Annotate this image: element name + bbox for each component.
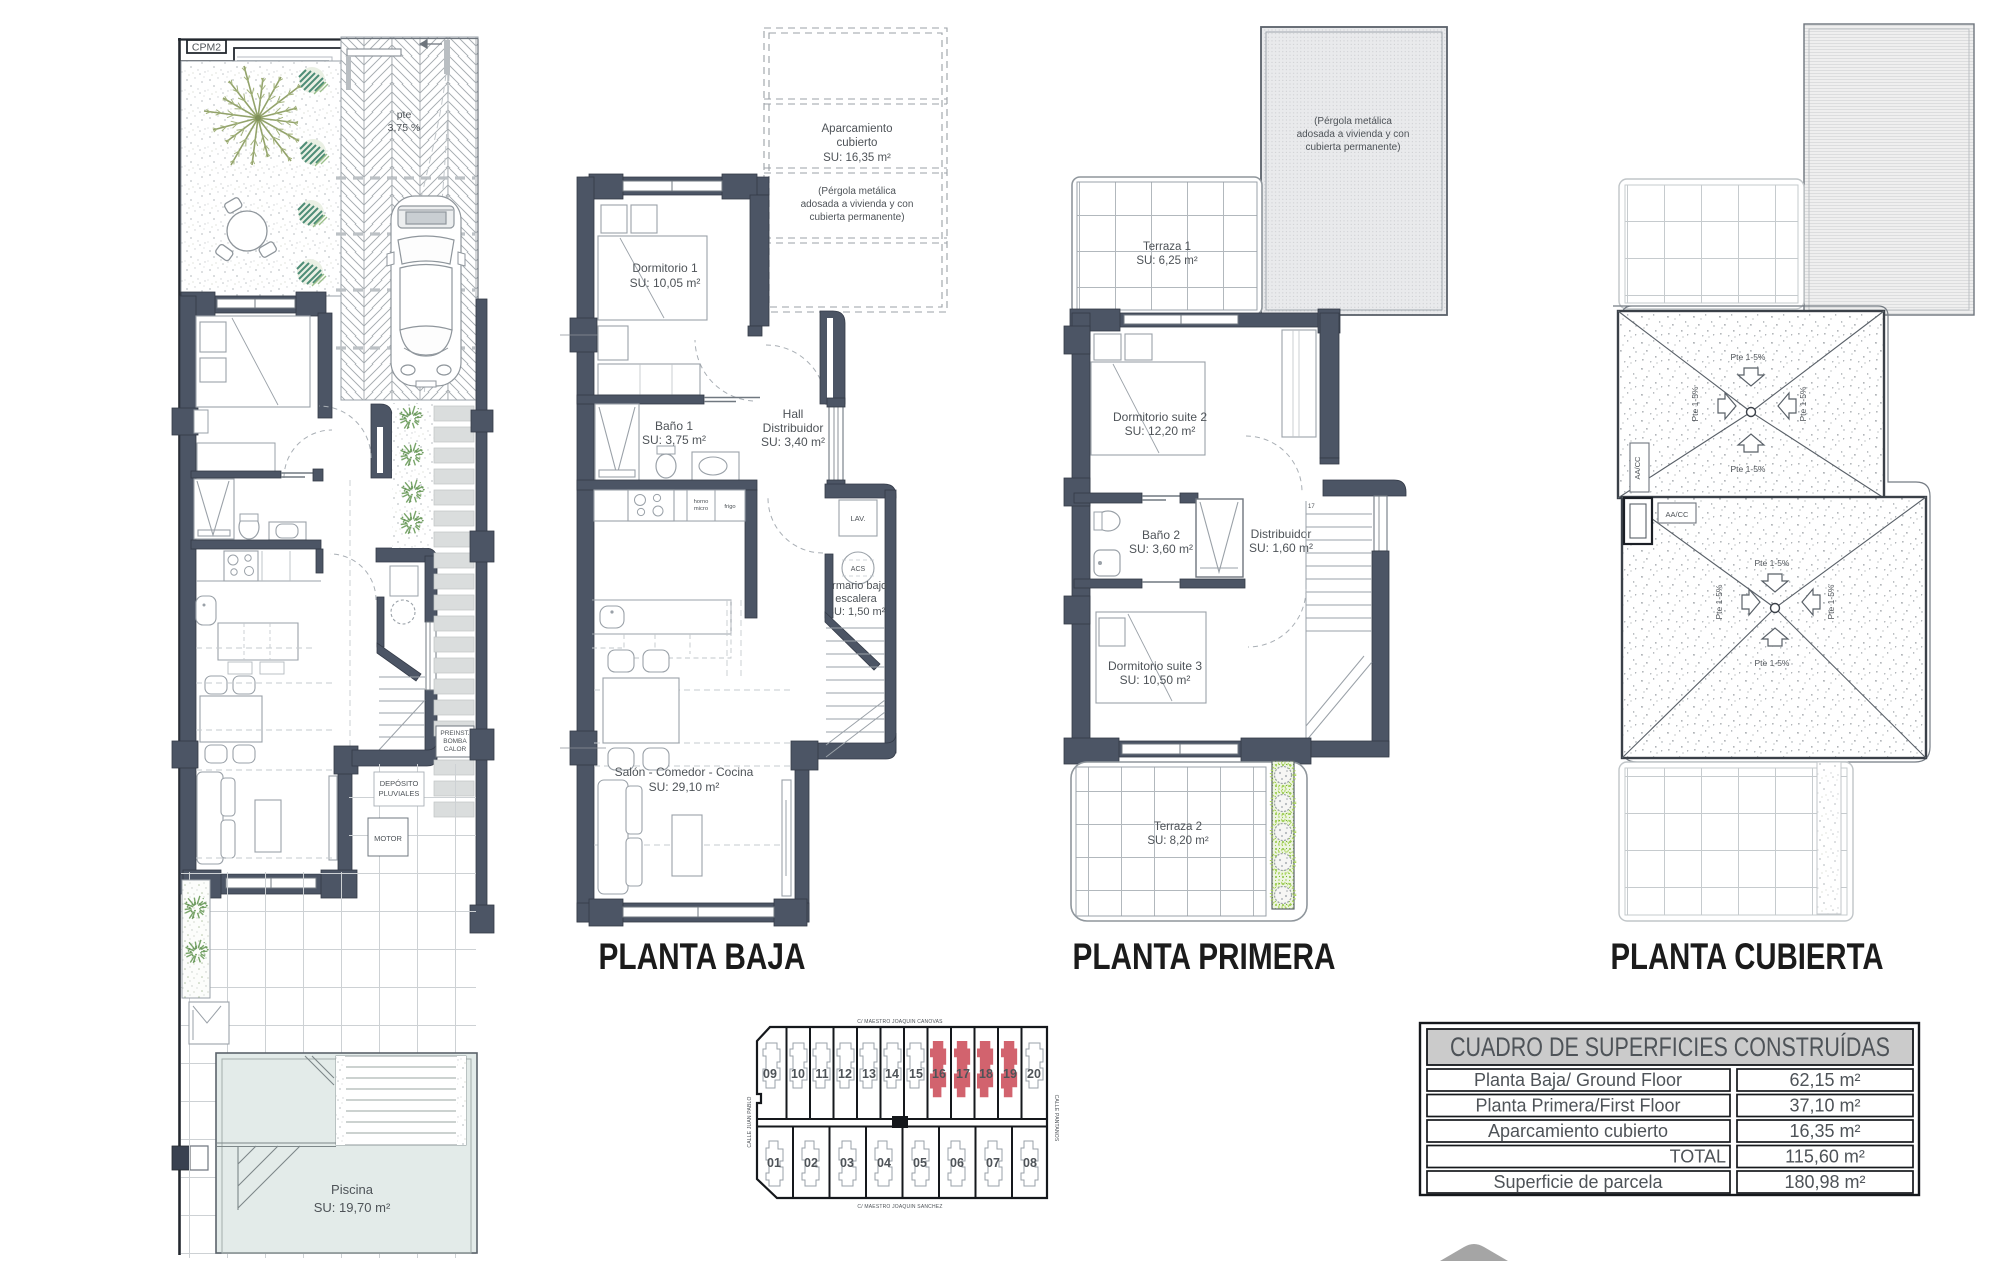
svg-text:19: 19 [1003,1067,1017,1081]
svg-text:PREINST.: PREINST. [440,730,469,737]
svg-text:(Pérgola metálica: (Pérgola metálica [818,186,896,197]
svg-text:Baño 1: Baño 1 [655,419,693,433]
svg-text:PLUVIALES: PLUVIALES [379,789,420,798]
svg-text:adosada a vivienda y con: adosada a vivienda y con [801,199,914,210]
svg-text:Pte 1-5%: Pte 1-5% [1755,558,1790,568]
svg-text:Terraza 1: Terraza 1 [1143,241,1191,253]
svg-text:cubierto: cubierto [837,137,878,149]
svg-text:SU: 29,10 m²: SU: 29,10 m² [649,780,720,794]
svg-text:horno: horno [694,499,709,505]
svg-text:Piscina: Piscina [331,1182,374,1197]
svg-text:Dormitorio suite 3: Dormitorio suite 3 [1108,659,1202,673]
svg-text:13: 13 [862,1067,876,1081]
svg-text:04: 04 [877,1156,891,1170]
svg-text:16: 16 [932,1067,946,1081]
svg-text:SU: 3,40 m²: SU: 3,40 m² [761,435,825,449]
svg-text:PLANTA BAJA: PLANTA BAJA [599,936,806,977]
svg-text:SU: 6,25 m²: SU: 6,25 m² [1136,255,1198,267]
svg-text:DEPÓSITO: DEPÓSITO [380,779,419,788]
svg-text:3,75 %: 3,75 % [388,122,421,134]
svg-text:115,60 m²: 115,60 m² [1785,1147,1865,1167]
svg-text:CPM2: CPM2 [192,42,221,54]
svg-text:Pte 1-5%: Pte 1-5% [1690,386,1700,421]
svg-text:(Pérgola metálica: (Pérgola metálica [1314,116,1392,127]
svg-text:SU: 19,70 m²: SU: 19,70 m² [314,1200,391,1215]
svg-text:Planta Primera/First Floor: Planta Primera/First Floor [1475,1096,1680,1116]
svg-text:Aparcamiento: Aparcamiento [822,123,893,135]
svg-text:Pte 1-5%: Pte 1-5% [1731,464,1766,474]
svg-text:01: 01 [767,1156,781,1170]
svg-text:07: 07 [986,1156,1000,1170]
svg-text:08: 08 [1023,1156,1037,1170]
svg-text:LAV.: LAV. [850,514,865,523]
svg-text:20: 20 [1027,1067,1041,1081]
svg-text:AA/CC: AA/CC [1633,456,1642,480]
svg-text:SU: 3,75 m²: SU: 3,75 m² [642,433,706,447]
svg-text:Superficie de parcela: Superficie de parcela [1493,1172,1663,1192]
svg-text:12: 12 [838,1067,852,1081]
svg-text:SU: 12,20 m²: SU: 12,20 m² [1125,424,1196,438]
svg-text:PLANTA PRIMERA: PLANTA PRIMERA [1073,936,1336,977]
svg-text:SU: 10,05 m²: SU: 10,05 m² [630,276,701,290]
svg-text:16,35 m²: 16,35 m² [1789,1121,1860,1141]
svg-text:cubierta permanente): cubierta permanente) [1305,142,1400,153]
svg-text:15: 15 [909,1067,923,1081]
svg-text:SU: 16,35 m²: SU: 16,35 m² [823,152,891,164]
svg-text:C/ MAESTRO JOAQUIN SANCHEZ: C/ MAESTRO JOAQUIN SANCHEZ [857,1204,942,1210]
svg-text:SU: 10,50 m²: SU: 10,50 m² [1120,673,1191,687]
svg-text:Pte 1-5%: Pte 1-5% [1826,584,1836,619]
svg-text:CALLE JUAN PABLO: CALLE JUAN PABLO [747,1096,753,1147]
svg-text:PLANTA CUBIERTA: PLANTA CUBIERTA [1611,936,1884,977]
svg-text:18: 18 [979,1067,993,1081]
svg-text:Dormitorio 1: Dormitorio 1 [632,261,698,275]
svg-text:AA/CC: AA/CC [1666,510,1690,519]
svg-text:Baño 2: Baño 2 [1142,528,1180,542]
svg-text:05: 05 [913,1156,927,1170]
svg-text:micro: micro [694,506,708,512]
svg-text:17: 17 [956,1067,970,1081]
svg-text:Pte 1-5%: Pte 1-5% [1798,386,1808,421]
svg-text:37,10 m²: 37,10 m² [1789,1096,1860,1116]
svg-text:Distribuidor: Distribuidor [763,421,824,435]
svg-text:MOTOR: MOTOR [374,834,402,843]
svg-text:180,98 m²: 180,98 m² [1784,1172,1865,1192]
svg-text:CALLE PANTANOS: CALLE PANTANOS [1053,1095,1059,1142]
svg-text:09: 09 [763,1067,777,1081]
svg-text:BOMBA: BOMBA [443,738,467,745]
svg-text:Planta Baja/ Ground Floor: Planta Baja/ Ground Floor [1474,1070,1682,1090]
svg-text:ACS: ACS [851,566,866,573]
svg-text:06: 06 [950,1156,964,1170]
svg-text:03: 03 [840,1156,854,1170]
svg-text:Salón - Comedor - Cocina: Salón - Comedor - Cocina [615,765,754,779]
svg-text:14: 14 [885,1067,899,1081]
svg-text:02: 02 [804,1156,818,1170]
svg-text:SU: 3,60 m²: SU: 3,60 m² [1129,542,1193,556]
svg-text:SU: 1,50 m²: SU: 1,50 m² [827,606,886,618]
svg-text:Armario bajo: Armario bajo [825,580,887,592]
svg-text:Hall: Hall [783,407,804,421]
svg-text:11: 11 [815,1067,828,1081]
svg-text:SU: 8,20 m²: SU: 8,20 m² [1147,835,1209,847]
svg-text:pte: pte [397,109,412,121]
svg-text:Terraza 2: Terraza 2 [1154,821,1202,833]
svg-text:Distribuidor: Distribuidor [1251,527,1312,541]
svg-text:escalera: escalera [835,593,877,605]
svg-text:Dormitorio suite 2: Dormitorio suite 2 [1113,410,1207,424]
svg-text:Aparcamiento cubierto: Aparcamiento cubierto [1488,1121,1668,1141]
svg-text:Pte 1-5%: Pte 1-5% [1731,352,1766,362]
svg-text:SU: 1,60 m²: SU: 1,60 m² [1249,541,1313,555]
svg-text:17: 17 [1308,504,1315,510]
svg-text:C/ MAESTRO JOAQUIN CANOVAS: C/ MAESTRO JOAQUIN CANOVAS [857,1019,943,1025]
svg-text:CUADRO DE SUPERFICIES CONSTRUÍ: CUADRO DE SUPERFICIES CONSTRUÍDAS [1450,1032,1890,1062]
svg-text:CALOR: CALOR [444,746,467,753]
svg-text:adosada a vivienda y con: adosada a vivienda y con [1297,129,1410,140]
svg-text:Pte 1-5%: Pte 1-5% [1755,658,1790,668]
svg-text:Pte 1-5%: Pte 1-5% [1714,584,1724,619]
svg-text:62,15 m²: 62,15 m² [1789,1070,1860,1090]
svg-text:10: 10 [791,1067,805,1081]
svg-text:cubierta permanente): cubierta permanente) [809,212,904,223]
svg-text:frigo: frigo [724,504,735,510]
svg-text:TOTAL: TOTAL [1670,1147,1726,1167]
